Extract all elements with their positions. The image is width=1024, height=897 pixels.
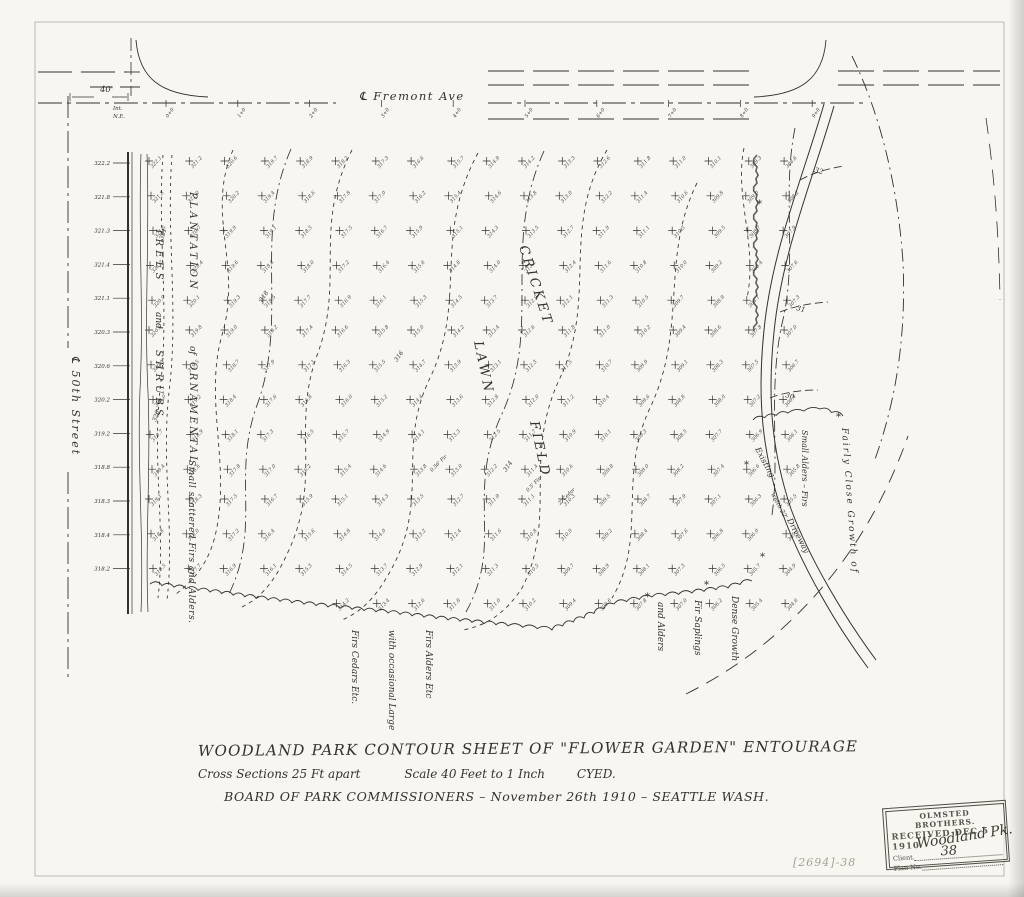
- field-name: CRICKET LAWN FIELD: [470, 244, 555, 480]
- spot-elevation-value: 317.2: [227, 528, 241, 543]
- paper-edge-shadow: [1008, 0, 1024, 897]
- tree-symbol: *: [704, 580, 709, 591]
- spot-elevation-value: 314.8: [338, 528, 352, 543]
- spot-elevation-value: 314.2: [523, 155, 537, 170]
- spot-elevation-value: 319.9: [224, 224, 239, 239]
- tree-symbol: *: [836, 412, 841, 423]
- spot-elevation-value: 309.7: [672, 294, 687, 309]
- spot-elevation-value: 320.9: [153, 294, 168, 309]
- spot-elevation-value: 316.3: [338, 359, 352, 374]
- spot-elevation-value: 306.7: [787, 358, 802, 373]
- contour-label: 32: [814, 166, 825, 176]
- corner-note: Int.: [112, 106, 123, 112]
- map-subtitle: Cross Sections 25 Ft apart Scale 40 Feet…: [198, 767, 738, 781]
- cross-section-note: Cross Sections 25 Ft apart: [198, 767, 361, 781]
- spot-elevation-value: 317.3: [376, 155, 390, 170]
- contour-line-major: [466, 151, 544, 612]
- spot-elevation-value: 307.6: [786, 259, 801, 274]
- station-label: 3+0: [380, 106, 391, 119]
- spot-elevation-value: 305.8: [788, 463, 802, 478]
- fiftieth-street-label: ℄ 50th Street: [69, 356, 82, 456]
- contour-label: 314: [502, 460, 514, 474]
- spot-elevation-value: 309.2: [710, 260, 724, 275]
- spot-elevation-value: 307.7: [710, 428, 725, 443]
- tree-line: [753, 407, 843, 420]
- spot-elevation-value: 316.6: [336, 324, 351, 339]
- tree-symbol: *: [645, 592, 650, 603]
- spot-elevation-value: 310.5: [527, 563, 541, 578]
- spot-elevation-value: 309.7: [562, 562, 577, 577]
- spot-elevation-value: 312.5: [488, 429, 502, 444]
- spot-elevation-value: 313.8: [415, 463, 429, 478]
- dimension-ticks: [70, 93, 128, 101]
- spot-elevation-value: 315.7: [337, 428, 352, 443]
- spot-elevation-value: 312.7: [562, 224, 577, 239]
- station-label: 1+0: [237, 106, 248, 119]
- spot-elevation-value: 310.5: [636, 294, 650, 309]
- station-label: 9+0: [811, 106, 822, 119]
- spot-elevation-value: 318.6: [303, 189, 318, 204]
- spot-elevation-value: 316.9: [339, 294, 354, 309]
- spot-elevation-value: 318.2: [336, 155, 350, 170]
- spot-elevation-value: 310.1: [599, 429, 613, 444]
- title-block: WOODLAND PARK CONTOUR SHEET OF "FLOWER G…: [198, 740, 738, 804]
- spot-elevation-value: 315.4: [449, 190, 463, 205]
- spot-elevation-value: 309.1: [676, 359, 690, 374]
- spot-elevation-value: 313.9: [449, 358, 464, 373]
- spot-elevation-value: 310.8: [525, 528, 539, 543]
- spot-elevation-value: 313.7: [375, 562, 390, 577]
- spot-elevation-value: 318.1: [226, 429, 240, 444]
- section-label: 318.4: [94, 533, 110, 539]
- spot-elevation-value: 322.1: [150, 155, 164, 170]
- spot-elevation-value: 311.5: [560, 359, 574, 374]
- spot-elevation-value: 316.6: [412, 155, 427, 170]
- spot-elevation-value: 317.2: [337, 260, 351, 275]
- spot-elevation-value: 308.8: [673, 394, 687, 409]
- scanned-map-sheet: { "paper": {"bg": "#f7f6f1", "ink": "#33…: [0, 0, 1024, 897]
- spot-elevation-value: 312.6: [598, 155, 613, 170]
- spot-elevation-value: 307.0: [785, 324, 800, 339]
- spot-elevation-value: 308.0: [713, 393, 728, 408]
- spot-elevation-value: 316.4: [262, 528, 276, 543]
- spot-elevation-value: 312.6: [523, 324, 538, 339]
- spot-elevation-value: 315.9: [411, 224, 426, 239]
- veg-label-fairly-close: Fairly Close Growth of: [839, 427, 859, 575]
- spot-elevation-value: 311.6: [489, 527, 504, 542]
- spot-elevation-value: 310.2: [638, 324, 652, 339]
- contour-line: [242, 150, 352, 607]
- spot-elevation-value: 319.4: [153, 463, 167, 478]
- spot-elevation-value: 306.9: [750, 428, 765, 443]
- spot-elevation-value: 315.4: [339, 463, 353, 478]
- stamp-plan-handwriting: 38: [940, 843, 958, 859]
- spot-elevation-value: 312.2: [600, 190, 614, 205]
- right-vegetation-labels: Small Alders – Firs Fairly Close Growth …: [800, 427, 859, 575]
- contour-labels: 321 320 318 316 314 32 31 30: [151, 166, 824, 473]
- spot-elevation-value: 305.7: [748, 562, 763, 577]
- spot-elevation-value: 315.5: [373, 359, 387, 374]
- spot-elevation-value: 305.4: [750, 598, 764, 613]
- veg-label: Firs Alders Etc: [423, 629, 433, 698]
- spot-elevation-value: 308.1: [637, 563, 651, 578]
- boundary-curve: [852, 56, 904, 462]
- spot-elevation-value: 313.6: [451, 393, 466, 408]
- spot-elevation-value: 309.8: [601, 463, 615, 478]
- spot-elevation-value: 311.9: [487, 493, 502, 508]
- spot-elevation-value: 311.1: [523, 493, 537, 508]
- spot-elevation-value: 314.6: [489, 189, 504, 204]
- checked-note: CYED.: [577, 767, 616, 781]
- section-label: 321.3: [94, 229, 110, 235]
- spot-elevation-value: 309.0: [636, 463, 651, 478]
- spot-elevation-value: 311.2: [562, 394, 576, 409]
- label-plantation: PLANTATION: [187, 191, 198, 292]
- spot-elevation-value: 306.0: [746, 527, 761, 542]
- contour-line: [742, 148, 750, 298]
- spot-elevation-value: 309.6: [637, 393, 652, 408]
- corner-note: N.E.: [112, 114, 125, 120]
- spot-elevation-value: 318.5: [154, 563, 168, 578]
- spot-elevation-value: 314.9: [377, 428, 392, 443]
- spot-elevation-value: 316.7: [265, 493, 280, 508]
- spot-elevation-value: 312.1: [561, 294, 575, 309]
- scale-note: Scale 40 Feet to 1 Inch: [404, 767, 545, 781]
- contour-lines: [157, 128, 845, 630]
- section-ticks: 322.2321.8321.3321.4321.1320.3320.6320.2…: [94, 161, 130, 573]
- spot-elevation-value: 307.2: [748, 394, 762, 409]
- spot-elevation-value: 313.5: [412, 493, 426, 508]
- spot-elevation-value: 321.2: [190, 155, 204, 170]
- olmsted-received-stamp: OLMSTED BROTHERS. RECEIVED DEC 5 1910 Cl…: [882, 800, 1010, 870]
- bottom-vegetation-labels: Firs Cedars Etc. with occasional Large F…: [349, 595, 739, 730]
- spot-elevation-value: 306.5: [713, 563, 727, 578]
- spot-elevation-value: 310.6: [676, 189, 691, 204]
- spot-elevation-value: 314.3: [376, 493, 390, 508]
- spot-elevation-value: 316.1: [264, 563, 278, 578]
- spot-elevation-value: 314.5: [340, 563, 354, 578]
- spot-elevation-value: 306.6: [747, 463, 762, 478]
- spot-elevation-value: 307.5: [746, 359, 760, 374]
- spot-elevation-value: 310.1: [709, 155, 723, 170]
- veg-label: Dense Growth: [729, 595, 739, 661]
- tree-symbol: *: [757, 199, 762, 210]
- existing-driveway: Existing width 22' Driveway: [753, 104, 876, 668]
- spot-elevation-value: 315.3: [415, 294, 429, 309]
- spot-elevation-value: 313.5: [527, 225, 541, 240]
- spot-elevation-value: 312.9: [411, 562, 426, 577]
- spot-elevation-value: 315.1: [451, 225, 465, 240]
- spot-elevation-value: 310.7: [600, 358, 615, 373]
- spot-elevation-value: 315.6: [413, 259, 428, 274]
- road-label-existing: Existing: [753, 445, 777, 479]
- label-ornamental: ORNAMENTAL: [187, 362, 198, 465]
- station-label: 0+0: [165, 106, 176, 119]
- spot-elevation-value: 306.2: [710, 598, 724, 613]
- spot-elevation-value: 307.3: [673, 563, 687, 578]
- spot-elevation-value: 316.9: [224, 562, 239, 577]
- spot-elevation-value: 317.7: [299, 294, 314, 309]
- spot-elevation-value: 311.0: [598, 324, 613, 339]
- spot-elevation-value: 311.9: [597, 224, 612, 239]
- section-label: 320.3: [94, 330, 110, 336]
- spot-elevation-value: 310.2: [524, 598, 538, 613]
- spot-elevation-value: 315.2: [375, 394, 389, 409]
- stamp-inner-border: OLMSTED BROTHERS. RECEIVED DEC 5 1910 Cl…: [885, 802, 1008, 867]
- spot-elevation-value: 318.7: [227, 358, 242, 373]
- spot-elevation-value: 312.8: [486, 394, 500, 409]
- spot-elevation-value: 308.2: [672, 463, 686, 478]
- tree-note: 0.56' Fir: [429, 453, 449, 473]
- spot-elevation-value: 313.3: [448, 429, 462, 444]
- station-label: 6+0: [596, 106, 607, 119]
- spot-elevation-value: 307.0: [675, 597, 690, 612]
- spot-elevation-value: 313.3: [563, 155, 577, 170]
- section-label: 320.2: [94, 398, 110, 404]
- spot-elevation-value: 315.8: [376, 324, 390, 339]
- spot-elevation-value: 319.1: [264, 225, 278, 240]
- map-title: WOODLAND PARK CONTOUR SHEET OF "FLOWER G…: [198, 738, 738, 760]
- spot-elevation-value: 312.2: [485, 463, 499, 478]
- corner-arc-ne: [754, 40, 826, 97]
- spot-elevation-value: 309.5: [713, 225, 727, 240]
- spot-elevation-value: 319.3: [228, 294, 242, 309]
- spot-elevation-value: 315.3: [300, 563, 314, 578]
- spot-elevation-value: 315.1: [336, 493, 350, 508]
- contour-line: [166, 155, 172, 600]
- spot-elevation-value: 309.4: [674, 324, 688, 339]
- pencil-file-number: [2694]-38: [793, 856, 856, 869]
- spot-elevation-value: 317.5: [340, 225, 354, 240]
- spot-elevation-value: 314.2: [337, 598, 351, 613]
- spot-elevation-value: 310.9: [564, 428, 579, 443]
- fremont-ave: ℄ Fremont Ave 40' Int. N.E.: [38, 71, 1000, 120]
- spot-elevation-value: 310.0: [560, 527, 575, 542]
- spot-elevation-value: 316.0: [340, 393, 355, 408]
- spot-elevation-value: 316.5: [302, 429, 316, 444]
- spot-elevation-value: 316.1: [374, 294, 388, 309]
- spot-elevation-value: 307.8: [749, 324, 763, 339]
- spot-elevation-value: 318.8: [152, 528, 166, 543]
- spot-elevation-value: 317.1: [303, 359, 317, 374]
- spot-elevation-value: 306.1: [786, 429, 800, 444]
- spot-elevation-value: 314.1: [413, 429, 427, 444]
- section-label: 318.8: [94, 465, 110, 471]
- spot-elevation-value: 312.3: [525, 359, 539, 374]
- corner-arc-nw: [136, 40, 208, 97]
- tree-symbol: *: [744, 460, 749, 471]
- spot-elevation-value: 316.7: [375, 224, 390, 239]
- road-edge: [761, 104, 868, 668]
- spot-elevation-value: 315.0: [412, 324, 427, 339]
- brush-band: [754, 155, 758, 331]
- contour-label: 316: [393, 350, 405, 364]
- spot-elevation-value: 309.8: [711, 190, 725, 205]
- spot-elevation-value: 309.9: [635, 358, 650, 373]
- tree-symbol: *: [760, 552, 765, 563]
- stamp-client-label: Client.: [893, 853, 915, 863]
- spot-elevation-value: 318.2: [265, 324, 279, 339]
- spot-elevation-value: 318.4: [224, 394, 238, 409]
- curb-line: [147, 154, 149, 612]
- spot-elevation-value: 308.4: [635, 528, 649, 543]
- spot-elevation-value: 321.8: [152, 190, 166, 205]
- spot-elevation-value: 317.8: [338, 190, 352, 205]
- spot-elevation-value: 306.3: [749, 493, 763, 508]
- spot-elevation-value: 308.5: [675, 429, 689, 444]
- spot-elevation-value: 318.3: [300, 225, 314, 240]
- spot-elevation-value: 309.4: [564, 598, 578, 613]
- spot-elevation-value: 308.2: [787, 190, 801, 205]
- spot-elevation-value: 308.3: [711, 359, 725, 374]
- spot-elevation-value: 313.7: [485, 294, 500, 309]
- spot-elevation-value: 313.8: [525, 190, 539, 205]
- spot-elevation-value: 307.1: [709, 493, 723, 508]
- spot-elevation-value: 319.7: [265, 155, 280, 170]
- veg-label: with occasional Large: [386, 630, 396, 730]
- spot-elevation-value: 313.4: [487, 324, 501, 339]
- spot-elevation-value: 318.9: [301, 155, 316, 170]
- spot-elevation-value: 311.1: [637, 225, 651, 240]
- spot-elevation-value: 319.6: [226, 259, 241, 274]
- paper-edge-shadow: [0, 883, 1024, 897]
- spot-elevation-value: 310.6: [561, 463, 576, 478]
- section-label: 319.2: [94, 431, 110, 437]
- spot-elevation-value: 317.4: [301, 324, 315, 339]
- station-label: 2+0: [308, 106, 320, 120]
- section-label: 318.3: [94, 499, 110, 505]
- spot-elevation-value: 317.6: [264, 393, 279, 408]
- spot-elevation-value: 316.4: [377, 260, 391, 275]
- section-label: 322.2: [94, 161, 110, 167]
- spot-elevation-value: 307.9: [674, 493, 689, 508]
- spot-elevation-value: 317.5: [225, 493, 239, 508]
- spot-elevation-value: 304.6: [786, 597, 801, 612]
- spot-elevation-value: 307.6: [676, 527, 691, 542]
- map-attribution: BOARD OF PARK COMMISSIONERS – November 2…: [224, 789, 738, 804]
- section-label: 321.1: [94, 296, 110, 302]
- veg-label-small-alders: Small Alders – Firs: [800, 430, 809, 507]
- spot-elevation-value: 320.1: [188, 294, 202, 309]
- spot-elevation-value: 306.8: [711, 528, 725, 543]
- curb-line: [139, 154, 142, 612]
- spot-elevation-value: 307.4: [712, 463, 726, 478]
- spot-elevation-value: 312.7: [452, 493, 467, 508]
- spot-elevation-value: 308.9: [712, 294, 727, 309]
- contour-label: 31: [796, 304, 807, 314]
- contour-line: [342, 153, 478, 620]
- spot-elevation-value: 314.0: [373, 527, 388, 542]
- spot-elevation-value: 304.9: [784, 562, 799, 577]
- fiftieth-street: ℄ 50th Street: [68, 96, 149, 682]
- spot-elevation-grid: 322.1321.2320.6319.7318.9318.2317.3316.6…: [145, 155, 802, 613]
- spot-elevation-value: 311.0: [488, 597, 503, 612]
- spot-elevation-value: 315.9: [301, 493, 316, 508]
- spot-elevation-value: 320.6: [225, 155, 240, 170]
- section-label: 320.6: [94, 364, 110, 370]
- spot-elevation-value: 314.6: [374, 463, 389, 478]
- spot-elevation-value: 314.3: [486, 225, 500, 240]
- station-label: 8+0: [739, 106, 750, 119]
- section-label: 321.4: [94, 262, 110, 268]
- veg-label: and Alders: [655, 602, 665, 652]
- spot-elevation-value: 319.1: [150, 493, 164, 508]
- spot-elevation-value: 310.8: [634, 260, 648, 275]
- spot-elevation-value: 314.5: [450, 294, 464, 309]
- label-of: of: [187, 346, 197, 356]
- spot-elevation-value: 312.0: [527, 393, 542, 408]
- spot-elevation-value: 314.2: [452, 324, 466, 339]
- spot-elevation-value: 312.4: [564, 260, 578, 275]
- spot-elevation-value: 319.7: [151, 428, 166, 443]
- contour-line: [176, 150, 233, 594]
- veg-label: Firs Cedars Etc.: [349, 629, 359, 704]
- spot-elevation-value: 312.4: [449, 528, 463, 543]
- spot-elevation-value: 314.8: [448, 260, 462, 275]
- spot-elevation-value: 313.2: [414, 528, 428, 543]
- spot-elevation-value: 308.7: [638, 493, 653, 508]
- spot-elevation-value: 316.2: [414, 190, 428, 205]
- boundary-curve: [986, 118, 1000, 300]
- spot-elevation-value: 311.3: [601, 294, 615, 309]
- spot-elevation-value: 308.6: [709, 324, 724, 339]
- section-label: 318.2: [94, 567, 110, 573]
- spot-elevation-value: 319.8: [190, 324, 204, 339]
- spot-elevation-value: 309.5: [598, 493, 612, 508]
- spot-elevation-value: 311.8: [448, 598, 462, 613]
- spot-elevation-value: 319.0: [225, 324, 240, 339]
- spot-elevation-value: 311.6: [599, 259, 614, 274]
- street-width-dim: 40': [99, 85, 113, 95]
- spot-elevation-value: 310.4: [597, 394, 611, 409]
- spot-elevation-value: 317.0: [373, 189, 388, 204]
- spot-elevation-value: 318.0: [302, 259, 317, 274]
- spot-elevation-value: 312.1: [451, 563, 465, 578]
- spot-elevation-value: 319.4: [262, 190, 276, 205]
- station-label: 5+0: [524, 106, 535, 119]
- spot-elevation-value: 314.4: [411, 394, 425, 409]
- spot-elevation-value: 316.8: [300, 394, 314, 409]
- spot-elevation-value: 320.2: [227, 190, 241, 205]
- veg-label: Fir Saplings: [692, 599, 702, 656]
- section-label: 321.8: [94, 195, 110, 201]
- field-name-cricket: CRICKET: [515, 244, 555, 328]
- spot-elevation-value: 312.6: [413, 597, 428, 612]
- spot-elevation-value: 318.8: [261, 260, 275, 275]
- spot-elevation-value: 310.0: [675, 259, 690, 274]
- spot-elevation-value: 311.8: [638, 155, 652, 170]
- spot-elevation-value: 309.3: [634, 429, 648, 444]
- spot-elevation-value: 311.3: [486, 563, 500, 578]
- spot-elevation-value: 317.3: [261, 429, 275, 444]
- station-label: 7+0: [667, 106, 678, 119]
- spot-elevation-value: 308.6: [785, 155, 800, 170]
- spot-elevation-value: 314.9: [487, 155, 502, 170]
- spot-elevation-value: 311.4: [635, 190, 649, 205]
- spot-elevation-value: 309.2: [600, 528, 614, 543]
- spot-elevation-value: 317.8: [228, 463, 242, 478]
- spot-elevation-value: 308.9: [597, 562, 612, 577]
- spot-elevation-value: 314.7: [414, 358, 429, 373]
- spot-elevation-value: 313.0: [450, 463, 465, 478]
- spot-elevation-value: 313.1: [489, 359, 503, 374]
- spot-elevation-value: 315.7: [452, 155, 467, 170]
- spot-elevation-value: 315.6: [303, 527, 318, 542]
- spot-elevation-value: 314.0: [488, 259, 503, 274]
- spot-elevation-value: 313.0: [560, 189, 575, 204]
- spot-elevation-value: 311.0: [674, 155, 689, 170]
- fremont-ave-label: ℄ Fremont Ave: [359, 89, 464, 103]
